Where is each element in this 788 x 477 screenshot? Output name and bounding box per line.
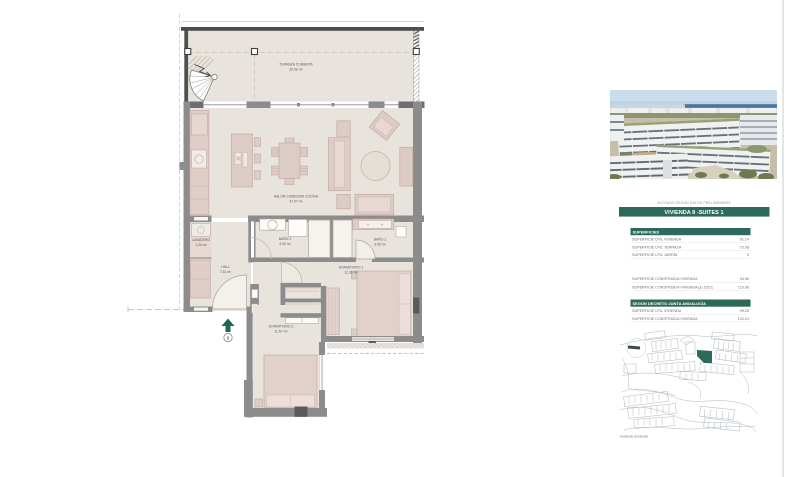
- svg-text:SUPERFICIE CONSTRUIDA VIVIENDA: SUPERFICIE CONSTRUIDA VIVIENDA: [632, 277, 698, 281]
- svg-text:HALL: HALL: [221, 265, 230, 269]
- svg-text:0: 0: [747, 253, 749, 257]
- svg-text:TERRAZA CUBIERTA: TERRAZA CUBIERTA: [279, 63, 313, 67]
- svg-text:SUPERFICIE CONSTRUIDA VIVIENDA: SUPERFICIE CONSTRUIDA VIVIENDA: [632, 317, 698, 321]
- svg-text:ACOTADO SEGÚN DATOS PRELIMINAR: ACOTADO SEGÚN DATOS PRELIMINARES: [657, 200, 731, 205]
- svg-text:LAVADERO: LAVADERO: [192, 238, 210, 242]
- svg-text:94.96: 94.96: [740, 277, 749, 281]
- svg-text:SUPERFICIE ÚTIL VIVIENDA: SUPERFICIE ÚTIL VIVIENDA: [632, 237, 682, 242]
- svg-text:7.61 m²: 7.61 m²: [220, 270, 232, 274]
- svg-text:11.57 m²: 11.57 m²: [274, 329, 288, 333]
- svg-text:SUPERFICIE ÚTIL JARDÍN: SUPERFICIE ÚTIL JARDÍN: [632, 252, 678, 257]
- svg-text:26.06 m²: 26.06 m²: [289, 68, 303, 72]
- svg-text:SEGÚN DECRETO JUNTA ANDALUCÍA: SEGÚN DECRETO JUNTA ANDALUCÍA: [633, 301, 707, 306]
- svg-text:DORMITORIO 2: DORMITORIO 2: [269, 325, 294, 329]
- svg-text:SUPERFICIE CONSTRUIDA VIVIENDA: SUPERFICIE CONSTRUIDA VIVIENDA pp.ZZCC: [632, 286, 714, 290]
- svg-text:1.24 m²: 1.24 m²: [195, 243, 207, 247]
- svg-text:99.25: 99.25: [740, 309, 749, 313]
- svg-text:BAÑO 2: BAÑO 2: [279, 236, 292, 241]
- svg-text:VIVIENDA 8 -SUITES 1: VIVIENDA 8 -SUITES 1: [664, 210, 723, 216]
- svg-text:12.36 m²: 12.36 m²: [344, 270, 358, 274]
- svg-text:123.08: 123.08: [738, 286, 749, 290]
- svg-text:4.30 m²: 4.30 m²: [279, 242, 291, 246]
- svg-text:132.01: 132.01: [738, 317, 749, 321]
- svg-text:37.97 m²: 37.97 m²: [289, 200, 303, 204]
- svg-text:SUPERFICIE ÚTIL TERRAZA: SUPERFICIE ÚTIL TERRAZA: [632, 244, 682, 249]
- svg-text:91.14: 91.14: [740, 238, 749, 242]
- svg-text:SUPERFICIE ÚTIL VIVIENDA: SUPERFICIE ÚTIL VIVIENDA: [632, 308, 682, 313]
- svg-text:SUPERFICIES: SUPERFICIES: [633, 229, 660, 234]
- svg-text:73.08: 73.08: [740, 245, 749, 249]
- svg-text:+: +: [381, 223, 384, 229]
- svg-text:8: 8: [227, 335, 230, 340]
- svg-text:DORMITORIO 1: DORMITORIO 1: [339, 266, 364, 270]
- svg-text:+: +: [367, 223, 370, 229]
- svg-text:BAÑO 1: BAÑO 1: [374, 237, 387, 242]
- svg-text:3.96 m²: 3.96 m²: [374, 242, 386, 246]
- svg-text:SALÓN COMEDOR COCINA: SALÓN COMEDOR COCINA: [274, 194, 319, 199]
- svg-text:PLANO DE SITUACIÓN: PLANO DE SITUACIÓN: [620, 434, 648, 439]
